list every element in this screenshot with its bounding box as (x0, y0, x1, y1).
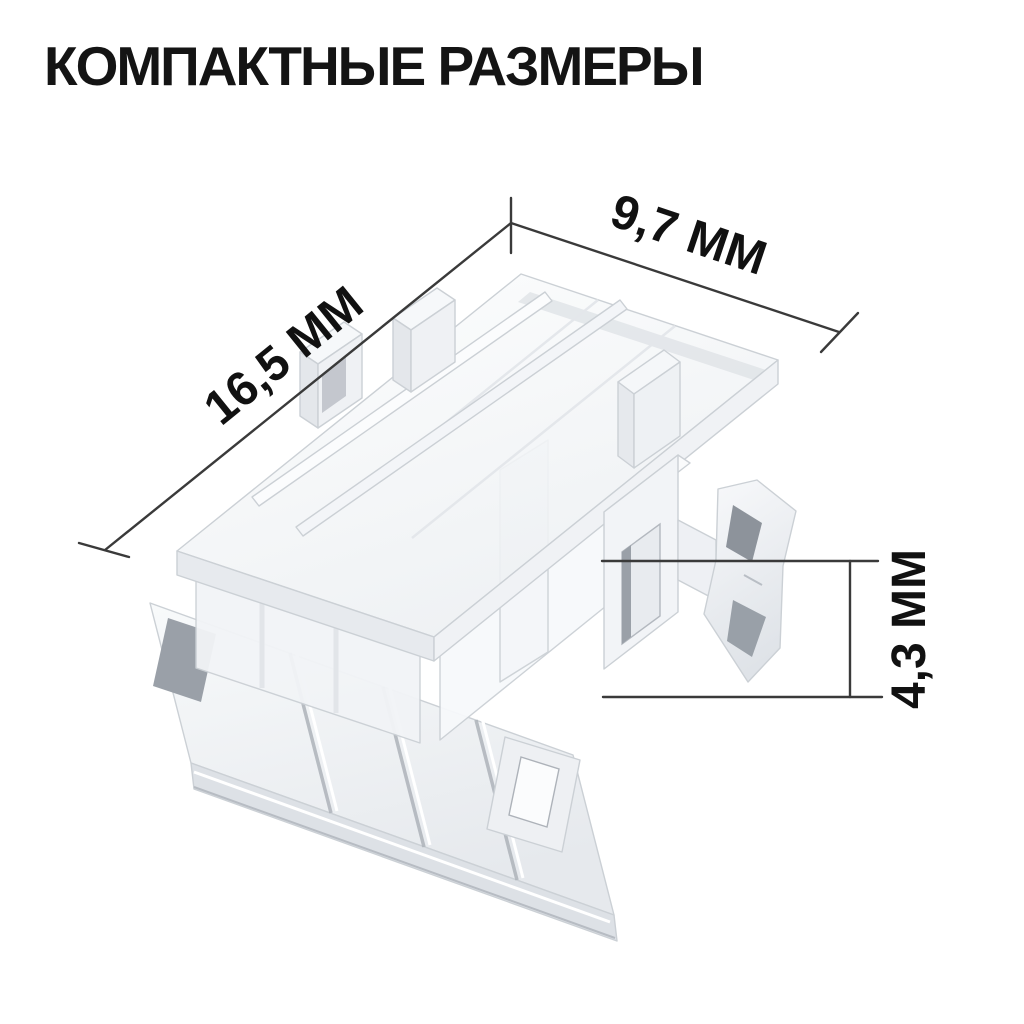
width-tick-right (821, 313, 858, 352)
width-dimension-label: 9,7 ММ (604, 185, 773, 286)
connector-lid (177, 274, 778, 661)
length-tick-left (79, 543, 129, 557)
connector-dimension-figure: 16,5 ММ 9,7 ММ 4,3 ММ (0, 0, 1024, 1024)
height-dimension-label: 4,3 ММ (883, 549, 936, 709)
infographic-canvas: КОМПАКТНЫЕ РАЗМЕРЫ (0, 0, 1024, 1024)
